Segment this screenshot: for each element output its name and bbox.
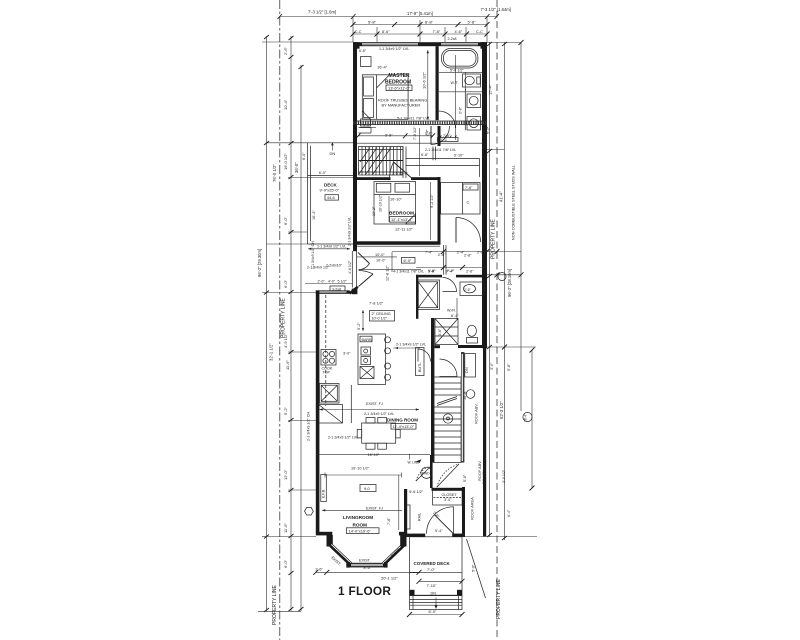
svg-text:6'-0": 6'-0" xyxy=(429,609,437,614)
svg-text:5'-0": 5'-0" xyxy=(472,564,476,572)
svg-text:12'-1"x13'-1": 12'-1"x13'-1" xyxy=(391,217,413,222)
svg-text:2'-8": 2'-8" xyxy=(459,106,463,114)
svg-text:9'-0"x25'-0": 9'-0"x25'-0" xyxy=(320,188,340,193)
svg-text:5'-2": 5'-2" xyxy=(283,406,288,415)
svg-text:17'-9" [5.41m]: 17'-9" [5.41m] xyxy=(407,11,433,16)
svg-text:3'-0 1/2": 3'-0 1/2" xyxy=(502,469,506,483)
svg-text:9'-2": 9'-2" xyxy=(357,322,361,330)
svg-text:16'-4": 16'-4" xyxy=(523,413,527,422)
svg-text:MASTER: MASTER xyxy=(389,73,411,79)
svg-text:DINING ROOM: DINING ROOM xyxy=(387,418,418,423)
svg-text:5'-8": 5'-8" xyxy=(428,270,436,274)
svg-text:5'-4": 5'-4" xyxy=(435,529,443,533)
svg-text:DN: DN xyxy=(330,151,336,156)
svg-text:5'-0 1/2": 5'-0 1/2" xyxy=(450,69,465,73)
svg-text:BY MANUFACTURER: BY MANUFACTURER xyxy=(382,102,421,107)
svg-text:2-1 3/4x9 1/2" LVL: 2-1 3/4x9 1/2" LVL xyxy=(328,436,358,440)
svg-text:6'-8": 6'-8" xyxy=(359,49,367,53)
svg-text:3'-0": 3'-0" xyxy=(343,352,351,356)
svg-text:41'-4": 41'-4" xyxy=(499,191,504,202)
svg-text:2'-8": 2'-8" xyxy=(432,511,440,519)
svg-text:3'-0": 3'-0" xyxy=(363,124,371,128)
svg-text:E.F.B.: E.F.B. xyxy=(322,489,326,498)
svg-text:7'-8": 7'-8" xyxy=(433,30,441,34)
svg-text:TOP: TOP xyxy=(323,371,331,375)
svg-text:44-6: 44-6 xyxy=(327,196,335,200)
svg-text:5'-8": 5'-8" xyxy=(368,19,377,24)
svg-text:7'-8 1/2": 7'-8 1/2" xyxy=(369,301,384,306)
svg-text:5'-8": 5'-8" xyxy=(463,474,467,482)
svg-text:RAIL: RAIL xyxy=(418,513,422,521)
svg-text:EXIST. FJ: EXIST. FJ xyxy=(366,402,383,406)
svg-text:7'-0": 7'-0" xyxy=(427,567,436,572)
svg-text:6'-0": 6'-0" xyxy=(283,559,288,568)
svg-text:10'-4": 10'-4" xyxy=(283,99,288,110)
svg-text:2-1 3/4x9 1/2" LVL: 2-1 3/4x9 1/2" LVL xyxy=(348,217,352,246)
svg-text:10'-0 1/2": 10'-0 1/2" xyxy=(372,317,388,321)
svg-text:36'-0": 36'-0" xyxy=(294,162,299,173)
svg-text:2'-6": 2'-6" xyxy=(283,46,288,55)
svg-text:13'-2": 13'-2" xyxy=(372,206,376,216)
svg-text:16'-0 1/2": 16'-0 1/2" xyxy=(283,153,288,170)
svg-text:7'-6": 7'-6" xyxy=(387,517,391,525)
svg-text:96'-2" [29.30m]: 96'-2" [29.30m] xyxy=(257,249,262,277)
svg-text:6'-0": 6'-0" xyxy=(302,152,306,160)
svg-text:1-1 3/4x9 1/2" LVL: 1-1 3/4x9 1/2" LVL xyxy=(317,244,346,248)
svg-text:BEDROOM: BEDROOM xyxy=(389,211,414,217)
svg-text:NON-COMBUSTIBLE STEEL STUDS WA: NON-COMBUSTIBLE STEEL STUDS WALL xyxy=(512,165,516,240)
svg-text:3'-6": 3'-6" xyxy=(438,328,442,336)
svg-text:PROPERTY LINE: PROPERTY LINE xyxy=(496,579,502,619)
svg-text:13'-6"x11'-0": 13'-6"x11'-0" xyxy=(388,86,411,91)
svg-text:6'-8": 6'-8" xyxy=(421,153,429,157)
svg-text:10'-10": 10'-10" xyxy=(390,198,402,202)
svg-text:4-1 3/4x11 7/8" LVL: 4-1 3/4x11 7/8" LVL xyxy=(393,269,424,273)
svg-text:5 1/2": 5 1/2" xyxy=(338,280,348,284)
svg-text:3-2x10: 3-2x10 xyxy=(352,209,356,220)
svg-text:5'-8": 5'-8" xyxy=(507,363,511,371)
svg-text:2-1 3/4x9 1/2" LVL: 2-1 3/4x9 1/2" LVL xyxy=(396,343,426,347)
svg-text:1'-6": 1'-6" xyxy=(315,567,323,572)
svg-text:C-C: C-C xyxy=(476,30,483,34)
svg-text:10'-0": 10'-0" xyxy=(376,259,386,263)
svg-text:16'-4": 16'-4" xyxy=(312,210,316,220)
svg-text:15'-4": 15'-4" xyxy=(488,84,493,95)
svg-text:8'-6": 8'-6" xyxy=(382,30,390,34)
svg-text:2-1 3/4x9 1/2" CH.: 2-1 3/4x9 1/2" CH. xyxy=(307,411,311,441)
svg-text:5'-8": 5'-8" xyxy=(385,134,393,138)
svg-text:2'-8": 2'-8" xyxy=(464,254,472,258)
svg-text:COVERED DECK: COVERED DECK xyxy=(414,561,451,566)
svg-text:2'-6": 2'-6" xyxy=(466,270,474,274)
svg-text:2'-0": 2'-0" xyxy=(477,251,485,255)
svg-text:2-2x6: 2-2x6 xyxy=(354,57,358,66)
svg-text:16'-4": 16'-4" xyxy=(377,65,388,70)
svg-text:11'-6": 11'-6" xyxy=(283,523,288,533)
svg-text:7'-8": 7'-8" xyxy=(465,186,473,190)
svg-text:C.: C. xyxy=(467,200,471,205)
svg-text:2" CEILING: 2" CEILING xyxy=(372,312,391,316)
svg-text:10'-0": 10'-0" xyxy=(375,253,385,257)
svg-text:5'-8": 5'-8" xyxy=(468,19,477,24)
svg-text:7'-4": 7'-4" xyxy=(446,270,454,274)
svg-text:6'-4": 6'-4" xyxy=(507,509,511,517)
svg-text:7'-6": 7'-6" xyxy=(443,134,451,138)
svg-text:6'-4": 6'-4" xyxy=(451,314,459,318)
svg-text:2-1 3/4x11 7/8" LVL: 2-1 3/4x11 7/8" LVL xyxy=(425,148,456,152)
svg-text:ROOF ABV.: ROOF ABV. xyxy=(474,403,479,424)
svg-text:4'-6": 4'-6" xyxy=(455,30,463,34)
svg-text:2'-4": 2'-4" xyxy=(457,251,465,255)
svg-text:3'-0": 3'-0" xyxy=(444,498,452,502)
svg-text:4'-6 1/2": 4'-6 1/2" xyxy=(348,260,352,274)
svg-text:16'-10 1/2": 16'-10 1/2" xyxy=(379,194,383,212)
svg-text:DN: DN xyxy=(431,592,437,596)
svg-text:2-2x8: 2-2x8 xyxy=(448,37,457,41)
svg-text:12'-0": 12'-0" xyxy=(283,469,288,480)
svg-text:12'-11 1/2": 12'-11 1/2" xyxy=(395,228,413,232)
svg-text:2-1 3/4x9 1/2": 2-1 3/4x9 1/2" xyxy=(307,266,330,270)
svg-text:ROOF AREA: ROOF AREA xyxy=(470,497,475,520)
svg-text:6'-0": 6'-0" xyxy=(404,258,412,263)
svg-text:PROPERTY LINE: PROPERTY LINE xyxy=(281,298,287,338)
svg-text:7'-4": 7'-4" xyxy=(425,251,433,255)
svg-text:DN: DN xyxy=(464,367,469,373)
svg-text:9-0: 9-0 xyxy=(364,486,371,491)
svg-text:4'-0 1/2": 4'-0 1/2" xyxy=(482,471,486,485)
svg-text:2'-0": 2'-0" xyxy=(318,280,326,284)
svg-text:96'-2" [28.10m]: 96'-2" [28.10m] xyxy=(507,269,512,297)
svg-text:W./R.: W./R. xyxy=(447,309,456,313)
svg-text:C-C: C-C xyxy=(355,30,362,34)
svg-text:8'-8": 8'-8" xyxy=(425,19,434,24)
svg-text:7'-9 1/2": 7'-9 1/2" xyxy=(413,126,417,140)
svg-text:8'-6": 8'-6" xyxy=(364,566,372,570)
svg-text:52'-3 1/2": 52'-3 1/2" xyxy=(499,401,504,419)
svg-text:7'-3 1/2" [1.64m]: 7'-3 1/2" [1.64m] xyxy=(481,7,511,12)
svg-text:4'-9 1/2": 4'-9 1/2" xyxy=(283,333,288,348)
svg-text:11'-4"x13'-0": 11'-4"x13'-0" xyxy=(393,424,415,429)
svg-text:W./T.: W./T. xyxy=(451,81,459,85)
svg-text:2-1 3/4x9 1/2" LVL: 2-1 3/4x9 1/2" LVL xyxy=(364,412,394,416)
svg-text:10'-10 1/2": 10'-10 1/2" xyxy=(351,466,370,470)
svg-text:6'-0": 6'-0" xyxy=(283,279,288,288)
svg-text:EXIST.: EXIST. xyxy=(330,556,341,567)
svg-text:14'-0"x19'-6": 14'-0"x19'-6" xyxy=(349,529,372,534)
svg-text:5'-10": 5'-10" xyxy=(454,154,464,158)
svg-text:EXIST.: EXIST. xyxy=(390,547,401,558)
svg-text:2'-6": 2'-6" xyxy=(438,253,446,257)
svg-text:3'-0": 3'-0" xyxy=(490,362,494,370)
svg-text:76'-0 1/2": 76'-0 1/2" xyxy=(272,164,277,182)
svg-text:6'-0": 6'-0" xyxy=(319,171,327,175)
svg-text:1 FLOOR: 1 FLOOR xyxy=(338,584,391,598)
svg-text:32'-1 1/2": 32'-1 1/2" xyxy=(269,343,274,361)
svg-text:5'-2": 5'-2" xyxy=(487,126,491,134)
svg-text:LIVINGROOM: LIVINGROOM xyxy=(343,515,373,520)
svg-text:BEDROOM: BEDROOM xyxy=(385,79,411,85)
svg-text:BARB: BARB xyxy=(362,338,373,342)
svg-text:PROPERTY LINE: PROPERTY LINE xyxy=(272,585,278,625)
svg-text:2'-6": 2'-6" xyxy=(464,288,472,292)
svg-text:6'-0": 6'-0" xyxy=(283,216,288,225)
svg-text:5'-6 1/2": 5'-6 1/2" xyxy=(409,490,424,494)
svg-text:EXIST. FJ: EXIST. FJ xyxy=(366,506,383,510)
svg-text:DECK: DECK xyxy=(324,182,338,187)
svg-text:12'-8 1/2": 12'-8 1/2" xyxy=(386,265,390,281)
svg-text:BUTL.: BUTL. xyxy=(418,362,422,372)
svg-text:20'-1 1/2": 20'-1 1/2" xyxy=(381,576,398,581)
svg-text:1-1 3/4x9 1/2" LVL: 1-1 3/4x9 1/2" LVL xyxy=(379,47,409,51)
svg-text:EXIST.: EXIST. xyxy=(359,559,371,563)
svg-text:5-1 3/4x11 7/8" LVL: 5-1 3/4x11 7/8" LVL xyxy=(397,117,430,121)
svg-text:7'-10": 7'-10" xyxy=(427,583,438,588)
svg-text:11'-6": 11'-6" xyxy=(285,360,290,370)
svg-text:7'-3 1/2" [1.6m]: 7'-3 1/2" [1.6m] xyxy=(308,10,336,15)
svg-text:10'-6 1/2": 10'-6 1/2" xyxy=(422,72,427,89)
svg-text:2'-7": 2'-7" xyxy=(426,128,430,136)
svg-text:CLOSET: CLOSET xyxy=(442,493,458,497)
svg-text:ROOM: ROOM xyxy=(353,523,368,528)
svg-text:4'-0": 4'-0" xyxy=(328,280,336,284)
